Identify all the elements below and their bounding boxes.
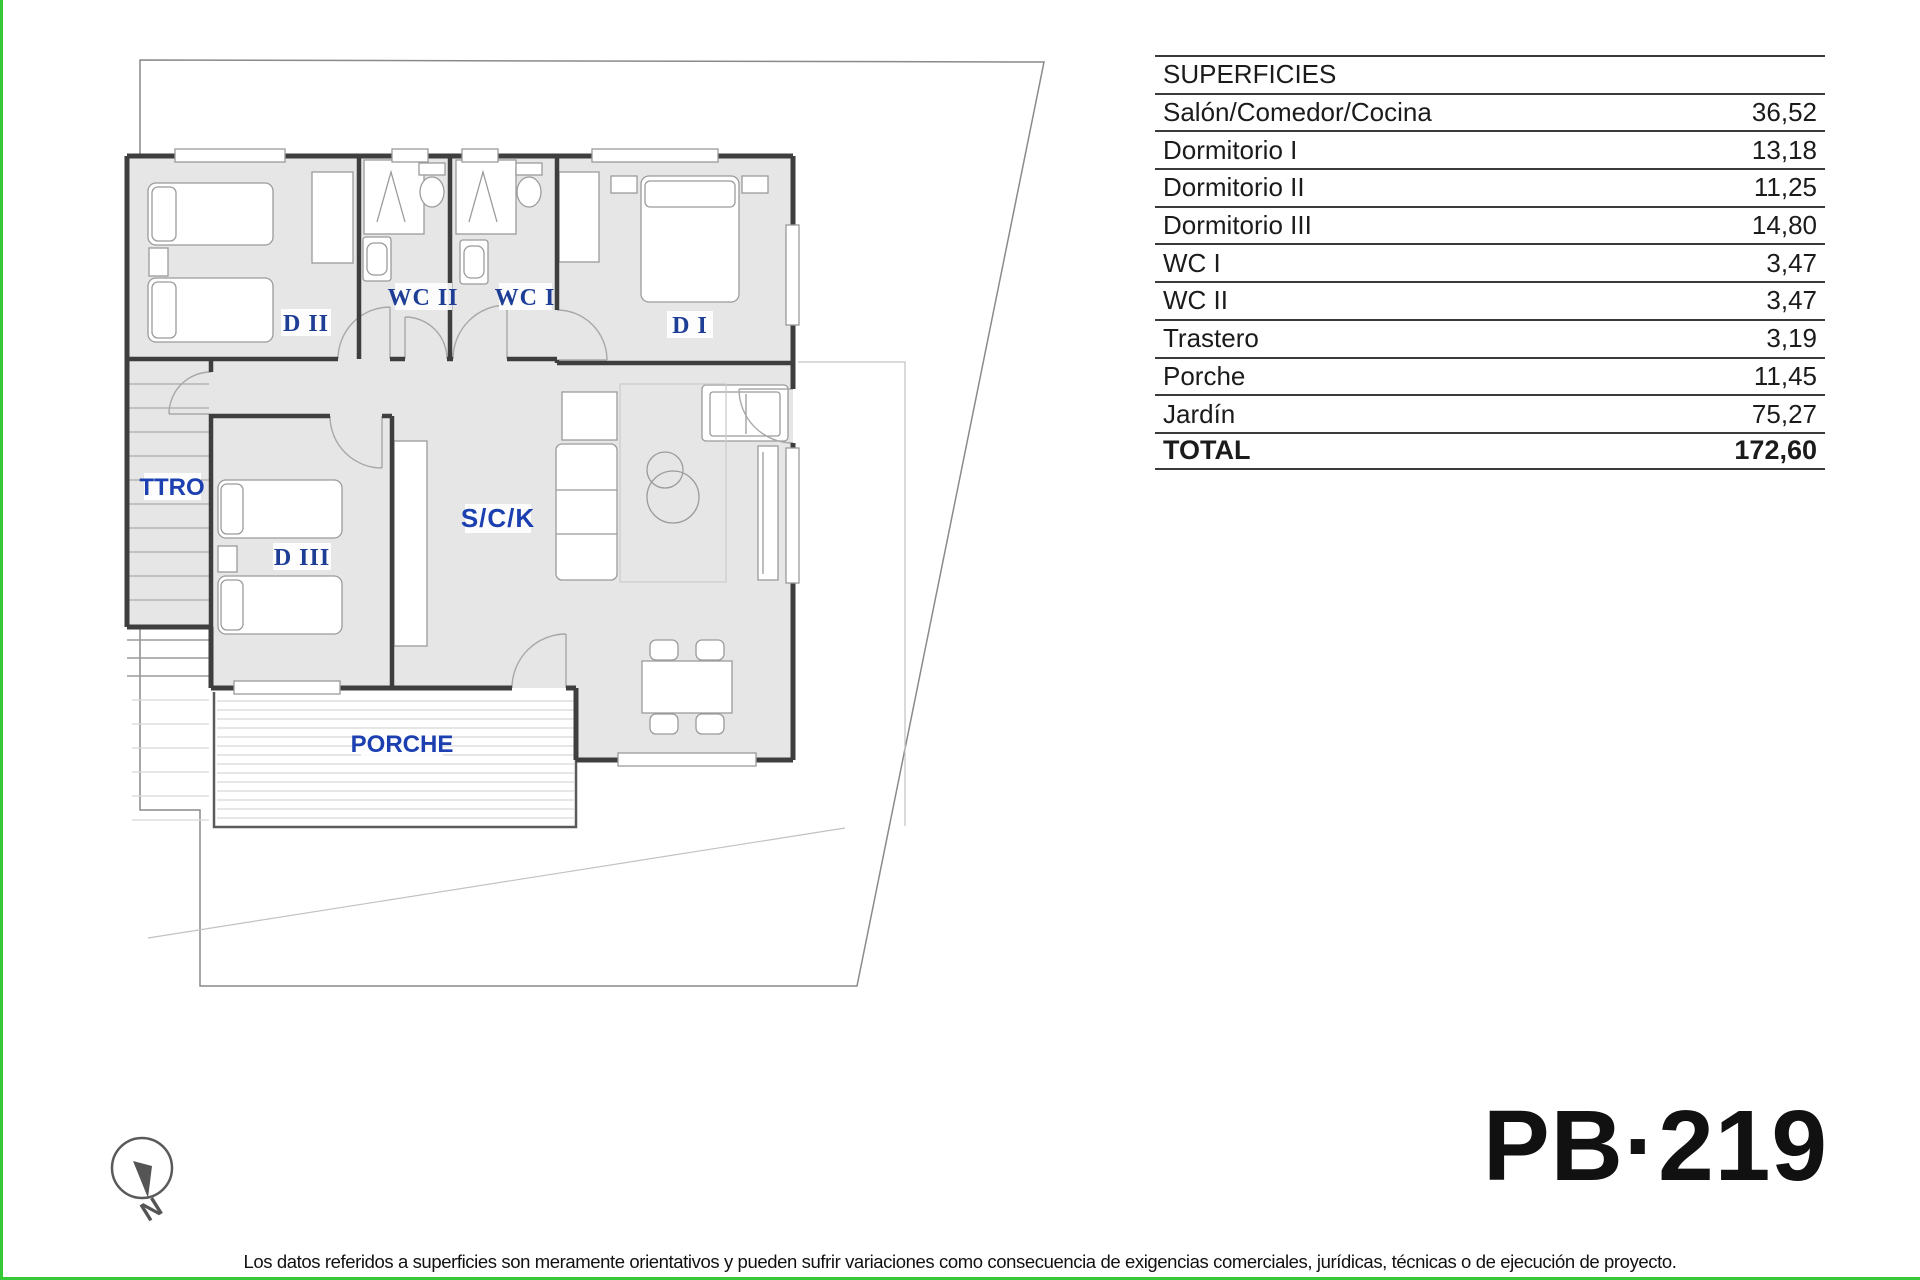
table-row: Dormitorio II 11,25 <box>1155 168 1825 206</box>
wardrobe-d2 <box>312 172 353 263</box>
toilet-wc2 <box>419 163 445 207</box>
bed-d2-2 <box>148 278 273 342</box>
nightstand-d2 <box>149 248 168 276</box>
total-label: TOTAL <box>1163 435 1251 466</box>
window-d2 <box>175 149 285 162</box>
wardrobe-d1 <box>559 172 599 262</box>
row-value: 13,18 <box>1752 135 1817 166</box>
row-value: 11,45 <box>1754 361 1817 392</box>
sink-wc2 <box>363 237 391 281</box>
bed-d2-1 <box>148 183 273 245</box>
table-row: Trastero 3,19 <box>1155 319 1825 357</box>
room-label-ttro: TTRO <box>139 474 204 501</box>
footer-disclaimer: Los datos referidos a superficies son me… <box>243 1251 1676 1273</box>
room-label-wc1: WC I <box>495 285 556 311</box>
table-row: WC I 3,47 <box>1155 243 1825 281</box>
total-value: 172,60 <box>1734 435 1817 466</box>
row-value: 75,27 <box>1752 399 1817 430</box>
row-value: 36,52 <box>1752 97 1817 128</box>
row-label: Trastero <box>1163 323 1259 354</box>
table-row: Porche 11,45 <box>1155 357 1825 395</box>
table-row: Jardín 75,27 <box>1155 394 1825 432</box>
window-sck-bottom <box>618 753 756 766</box>
room-label-d2: D II <box>283 311 329 337</box>
toilet-wc1 <box>516 163 542 207</box>
floor-plan-page: D II WC II WC I D I TTRO D III S/C/K POR… <box>0 0 1920 1280</box>
garden-steps-faint <box>132 700 209 820</box>
room-label-d1: D I <box>672 313 708 339</box>
nightstand-d3 <box>218 546 237 572</box>
room-label-porche: PORCHE <box>351 731 454 758</box>
room-label-wc2: WC II <box>387 285 458 311</box>
plan-code: PB·219 <box>1483 1096 1828 1196</box>
row-label: Porche <box>1163 361 1245 392</box>
window-d1-top <box>592 149 718 162</box>
sink-wc1 <box>460 240 488 284</box>
shower-wc1 <box>456 160 516 234</box>
row-label: Dormitorio III <box>1163 210 1312 241</box>
porch-deck <box>214 692 576 827</box>
surfaces-table: SUPERFICIES Salón/Comedor/Cocina 36,52 D… <box>1155 55 1825 470</box>
kitchen-counter <box>394 441 427 646</box>
table-row: WC II 3,47 <box>1155 281 1825 319</box>
surfaces-table-header: SUPERFICIES <box>1155 55 1825 93</box>
row-value: 14,80 <box>1752 210 1817 241</box>
sofa <box>556 444 617 580</box>
room-label-d3: D III <box>274 545 330 571</box>
room-label-sck: S/C/K <box>461 503 535 533</box>
window-d3 <box>234 681 340 694</box>
tv-bench <box>758 446 778 580</box>
nightstand-d1-left <box>611 176 637 193</box>
nightstand-d1-right <box>742 176 768 193</box>
table-row: Dormitorio III 14,80 <box>1155 206 1825 244</box>
row-label: Dormitorio II <box>1163 172 1305 203</box>
row-label: WC II <box>1163 285 1228 316</box>
bed-d1 <box>641 176 739 302</box>
row-label: Salón/Comedor/Cocina <box>1163 97 1432 128</box>
row-value: 3,47 <box>1766 285 1817 316</box>
bed-d3-1 <box>218 480 342 538</box>
row-label: Dormitorio I <box>1163 135 1297 166</box>
window-wc1 <box>462 149 498 162</box>
row-value: 11,25 <box>1754 172 1817 203</box>
compass: N <box>112 1138 172 1227</box>
window-d1-right <box>786 225 799 325</box>
row-value: 3,19 <box>1766 323 1817 354</box>
table-total-row: TOTAL 172,60 <box>1155 432 1825 470</box>
sideboard <box>562 392 617 440</box>
bed-d3-2 <box>218 576 342 634</box>
window-wc2 <box>392 149 428 162</box>
window-sck-right <box>786 448 799 583</box>
row-label: Jardín <box>1163 399 1235 430</box>
row-label: WC I <box>1163 248 1221 279</box>
table-header-label: SUPERFICIES <box>1163 59 1336 90</box>
shower-wc2 <box>364 160 424 234</box>
table-row: Salón/Comedor/Cocina 36,52 <box>1155 93 1825 131</box>
table-row: Dormitorio I 13,18 <box>1155 130 1825 168</box>
row-value: 3,47 <box>1766 248 1817 279</box>
